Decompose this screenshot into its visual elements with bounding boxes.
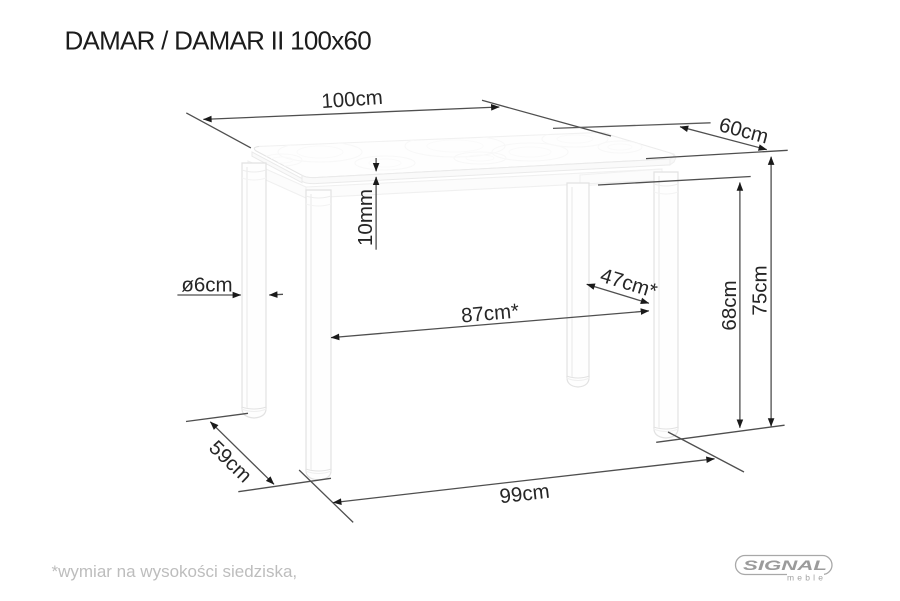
svg-text:68cm: 68cm — [718, 280, 741, 330]
svg-text:SIGNAL: SIGNAL — [743, 558, 827, 573]
svg-text:75cm: 75cm — [749, 265, 772, 315]
svg-text:DAMAR / DAMAR II 100x60: DAMAR / DAMAR II 100x60 — [65, 26, 372, 56]
svg-text:100cm: 100cm — [321, 86, 384, 113]
svg-text:ø6cm: ø6cm — [181, 274, 232, 297]
svg-text:10mm: 10mm — [354, 189, 377, 246]
svg-text:meble: meble — [787, 573, 826, 583]
svg-text:*wymiar na wysokości siedziska: *wymiar na wysokości siedziska, — [52, 562, 298, 581]
